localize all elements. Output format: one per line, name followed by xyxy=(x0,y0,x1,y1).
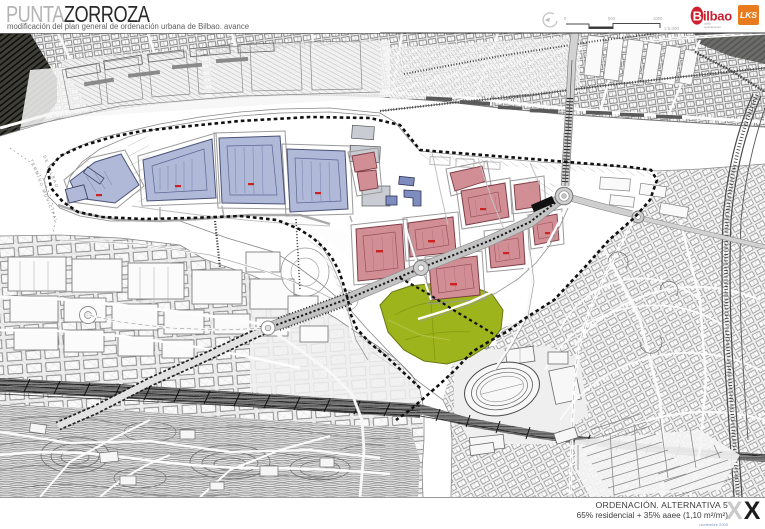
svg-text:0: 0 xyxy=(564,16,567,21)
svg-text:1000: 1000 xyxy=(653,16,663,21)
svg-text:ayuntamiento: ayuntamiento xyxy=(704,25,721,29)
svg-text:1:5.000: 1:5.000 xyxy=(664,26,680,31)
svg-text:B: B xyxy=(693,9,702,24)
svg-text:500: 500 xyxy=(608,16,616,21)
